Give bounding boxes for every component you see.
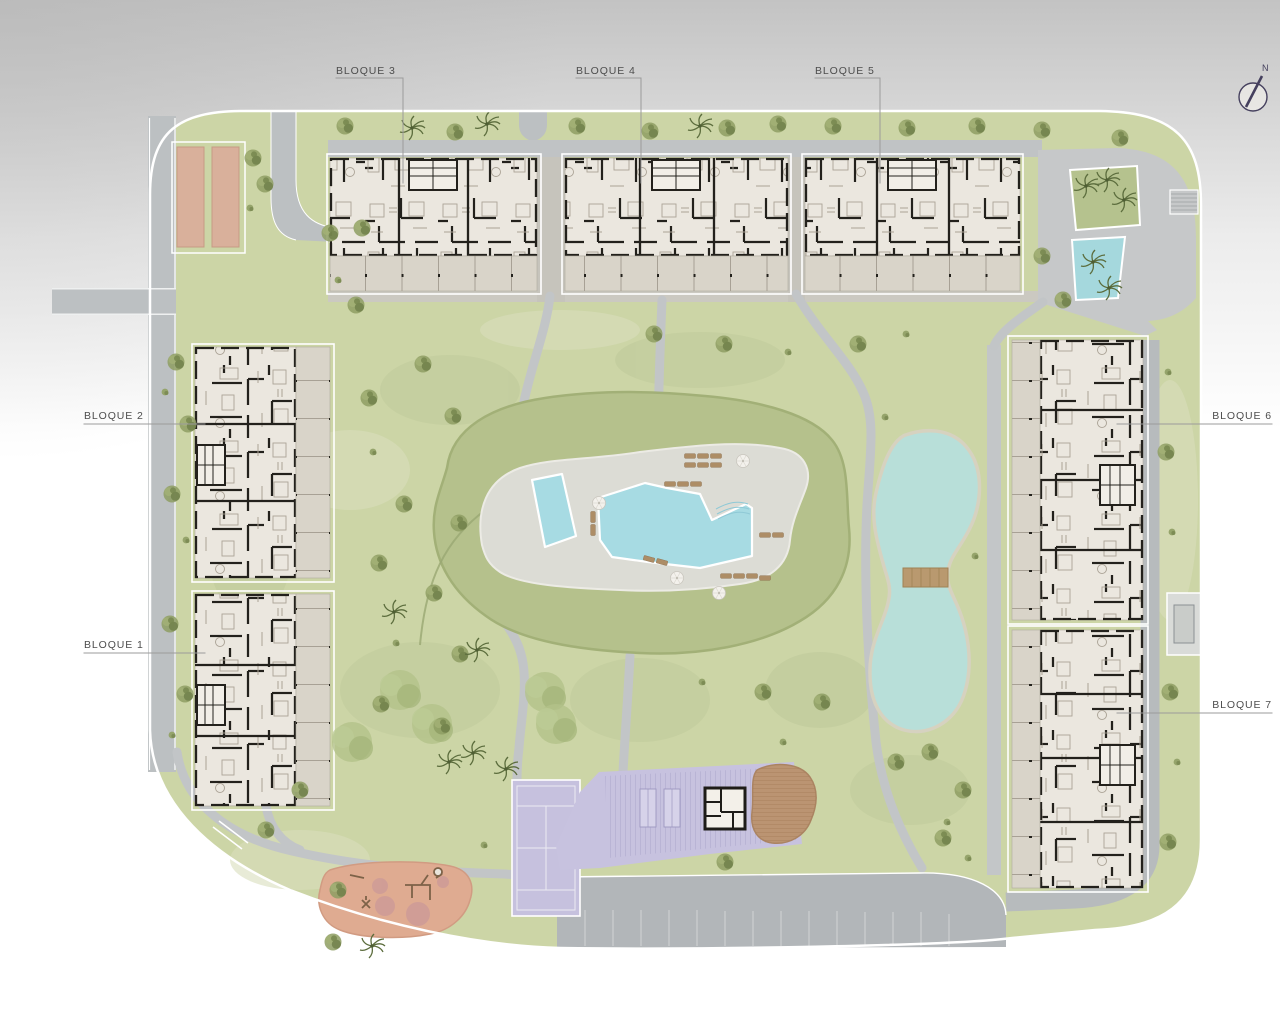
playground xyxy=(319,862,472,938)
pool-mound xyxy=(420,392,850,653)
bloque-6-building[interactable] xyxy=(1008,336,1148,624)
site-plan-canvas: BLOQUE 3 BLOQUE 4 BLOQUE 5 BLOQUE 2 BLOQ… xyxy=(0,0,1280,1024)
lake-bridge xyxy=(903,568,948,587)
entry-stairs xyxy=(1170,190,1198,214)
bloque-1-label-text: BLOQUE 1 xyxy=(84,639,144,651)
bloque-5-building[interactable] xyxy=(802,154,1023,294)
north-label: N xyxy=(1262,63,1269,73)
bloque-7-label-text: BLOQUE 7 xyxy=(1212,699,1272,711)
communal-building xyxy=(705,788,745,829)
bloque-7-building[interactable] xyxy=(1008,626,1148,892)
bloque-4-label-text: BLOQUE 4 xyxy=(576,65,636,77)
bloque-1-building[interactable] xyxy=(192,591,334,810)
side-structure xyxy=(1167,593,1201,655)
bloque-2-building[interactable] xyxy=(192,344,334,582)
bloque-4-building[interactable] xyxy=(562,154,791,294)
north-compass-circle xyxy=(1239,83,1267,111)
bloque-3-label-text: BLOQUE 3 xyxy=(336,65,396,77)
bloque-2-label-text: BLOQUE 2 xyxy=(84,410,144,422)
bloque-5-label-text: BLOQUE 5 xyxy=(815,65,875,77)
bloque-6-label-text: BLOQUE 6 xyxy=(1212,410,1272,422)
site-plan-page: BLOQUE 3 BLOQUE 4 BLOQUE 5 BLOQUE 2 BLOQ… xyxy=(0,0,1280,1024)
